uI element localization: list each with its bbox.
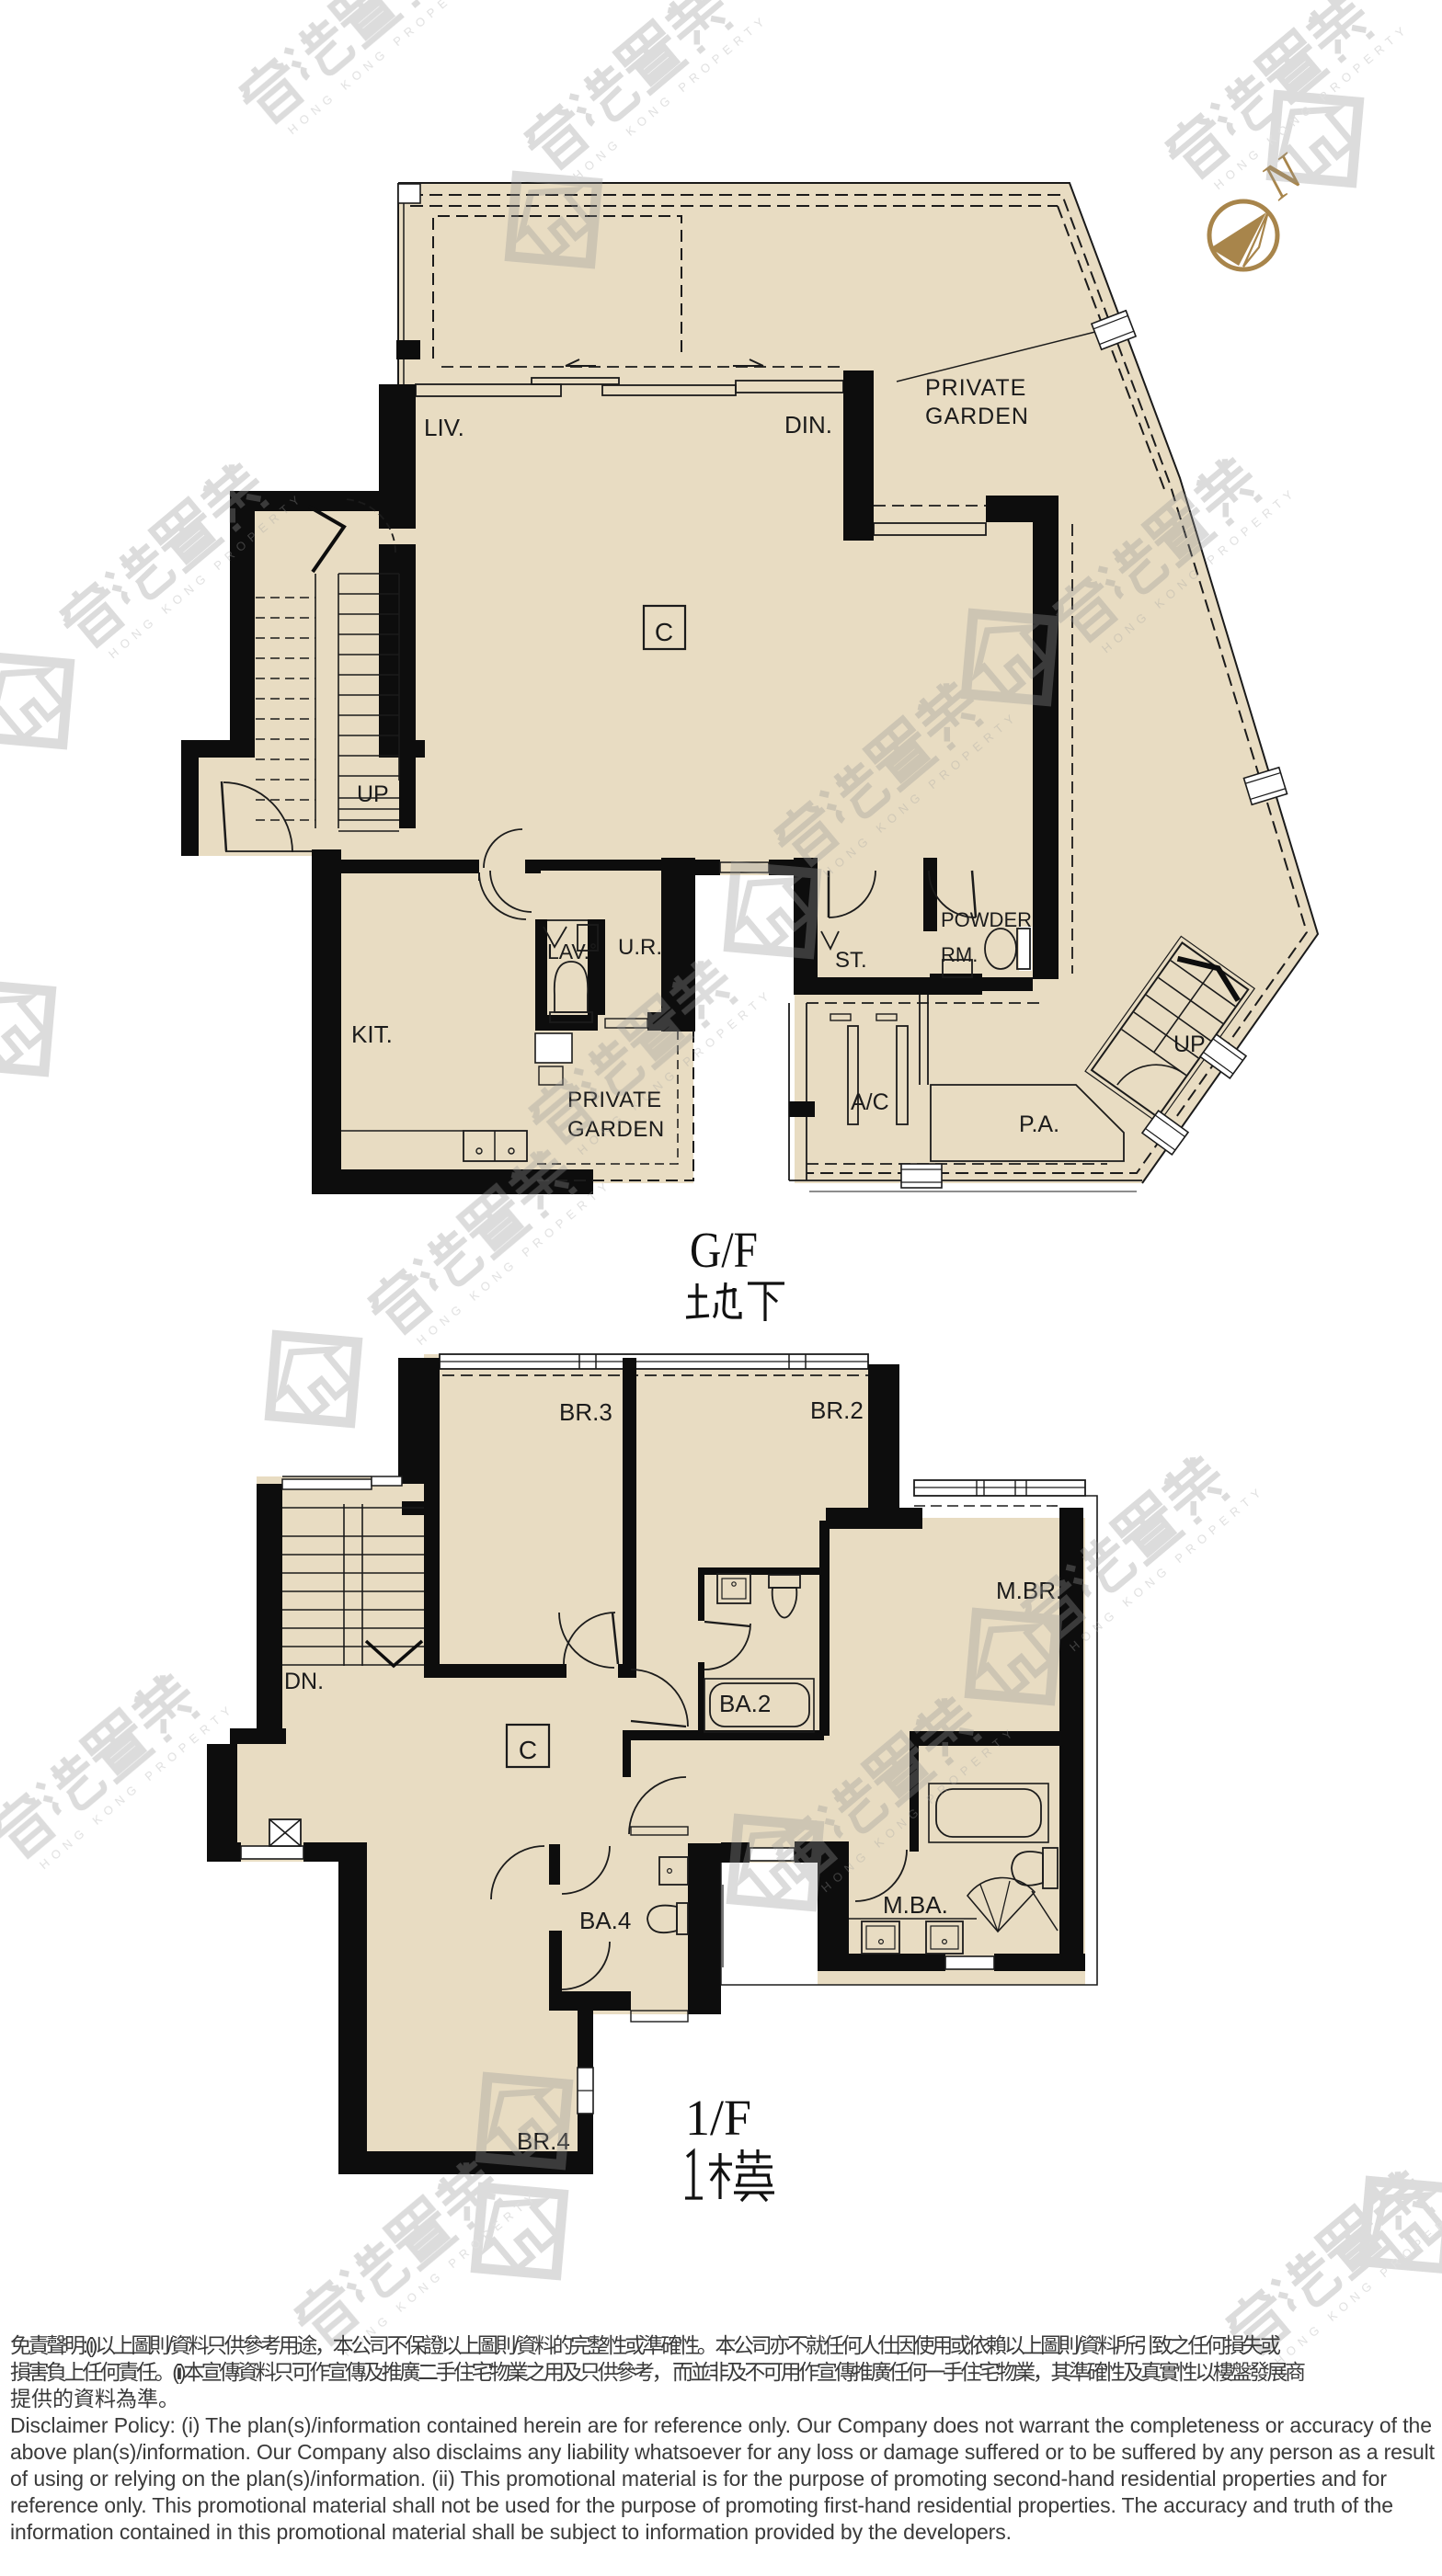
svg-text:Disclaimer Policy: (i) The pla: Disclaimer Policy: (i) The plan(s)/infor… bbox=[10, 2413, 1432, 2437]
svg-text:A/C: A/C bbox=[851, 1089, 889, 1115]
svg-text:BR.3: BR.3 bbox=[559, 1398, 612, 1426]
svg-text:P.A.: P.A. bbox=[1019, 1111, 1059, 1137]
svg-text:免責聲明:(i)以上圖則/資料只供參考用途，本公司不保證以上: 免責聲明:(i)以上圖則/資料只供參考用途，本公司不保證以上圖則/資料的完整性或… bbox=[10, 2333, 1281, 2357]
svg-text:UP: UP bbox=[357, 781, 389, 807]
svg-text:KIT.: KIT. bbox=[351, 1020, 393, 1048]
svg-text:1/F: 1/F bbox=[685, 2090, 751, 2146]
svg-text:information contained in this: information contained in this promotiona… bbox=[10, 2520, 1012, 2544]
svg-text:BR.2: BR.2 bbox=[810, 1396, 864, 1424]
svg-text:RM.: RM. bbox=[941, 943, 978, 966]
svg-text:POWDER: POWDER bbox=[941, 908, 1032, 931]
svg-text:UP: UP bbox=[1173, 1032, 1206, 1057]
svg-text:G/F: G/F bbox=[690, 1222, 758, 1278]
svg-text:提供的資料為準。: 提供的資料為準。 bbox=[10, 2387, 179, 2411]
svg-text:PRIVATE: PRIVATE bbox=[925, 375, 1026, 401]
svg-text:ST.: ST. bbox=[835, 948, 867, 973]
svg-text:GARDEN: GARDEN bbox=[925, 404, 1029, 429]
svg-text:BA.4: BA.4 bbox=[579, 1907, 631, 1934]
svg-text:LAV.: LAV. bbox=[547, 940, 589, 963]
svg-text:C: C bbox=[655, 618, 673, 646]
svg-text:of using or relying on the pla: of using or relying on the plan(s)/infor… bbox=[10, 2467, 1387, 2491]
svg-text:DN.: DN. bbox=[284, 1669, 324, 1694]
svg-text:M.BA.: M.BA. bbox=[883, 1891, 948, 1919]
svg-text:損害負上任何責任。(ii)本宣傳資料只可作宣傳及推廣二手住宅: 損害負上任何責任。(ii)本宣傳資料只可作宣傳及推廣二手住宅物業之用及只供參考，… bbox=[10, 2360, 1306, 2384]
svg-text:above plan(s)/information. Our: above plan(s)/information. Our Company a… bbox=[10, 2440, 1436, 2464]
svg-text:U.R.: U.R. bbox=[618, 935, 662, 960]
svg-text:LIV.: LIV. bbox=[424, 414, 464, 441]
svg-text:reference only. This promotion: reference only. This promotional materia… bbox=[10, 2493, 1393, 2517]
svg-text:C: C bbox=[519, 1736, 537, 1764]
svg-text:DIN.: DIN. bbox=[784, 411, 832, 439]
svg-text:BA.2: BA.2 bbox=[719, 1690, 771, 1717]
